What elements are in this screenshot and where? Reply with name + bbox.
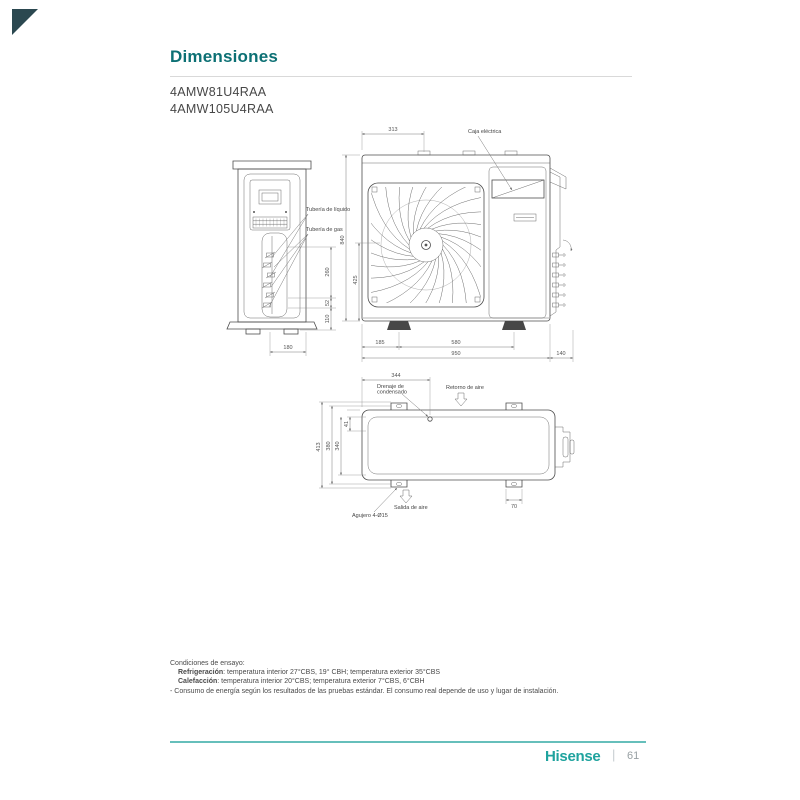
footer-divider (170, 741, 646, 743)
title-divider (170, 76, 632, 77)
catalog-page: { "page": { "title": "Dimensiones", "mod… (0, 0, 800, 800)
cooling-text: : temperatura interior 27°CBS, 19° CBH; … (223, 669, 440, 676)
label-mounting-hole: Agujero 4-Ø15 (352, 513, 388, 519)
pipe-valve-connectors (262, 252, 276, 308)
dim-total-width: 950 (451, 351, 460, 357)
heating-condition: Calefacción: temperatura interior 20°CBS… (170, 677, 558, 686)
conditions-heading: Condiciones de ensayo: (170, 659, 558, 668)
footer-separator: | (612, 747, 615, 762)
front-view: Caja eléctrica 313 840 425 185 580 950 1… (340, 127, 573, 362)
label-electrical-box: Caja eléctrica (468, 129, 502, 135)
air-outlet-arrow-icon (400, 490, 412, 503)
dim-feet-span: 580 (451, 340, 460, 346)
panel-screw (253, 211, 255, 213)
label-air-outlet: Salida de aire (394, 505, 428, 511)
technical-drawing: Tubería de líquido Tubería de gas 260 52… (165, 120, 675, 540)
panel-screw (285, 211, 287, 213)
label-air-return: Retorno de aire (446, 385, 484, 391)
dim-edge-offset: 41 (344, 421, 350, 427)
test-conditions: Condiciones de ensayo: Refrigeración: te… (170, 659, 558, 696)
dim-fan-center: 425 (353, 275, 359, 284)
dim-foot-offset: 185 (375, 340, 384, 346)
dim-top-width: 313 (388, 127, 397, 133)
consumption-note: - Consumo de energía según los resultado… (170, 687, 558, 696)
dim-foot-width: 70 (511, 504, 517, 510)
dim-pipe-52: 52 (325, 300, 331, 306)
corner-accent-triangle (12, 9, 38, 35)
dim-side-depth: 140 (556, 351, 565, 357)
cooling-condition: Refrigeración: temperatura interior 27°C… (170, 668, 558, 677)
page-number: 61 (627, 750, 639, 762)
model-list: 4AMW81U4RAA 4AMW105U4RAA (170, 84, 274, 118)
fan-grille-spiral (344, 163, 507, 327)
label-liquid-pipe: Tubería de líquido (306, 207, 350, 213)
dim-drain-offset: 344 (391, 373, 400, 379)
mounting-foot (502, 321, 526, 330)
dim-body-depth: 340 (335, 441, 341, 450)
dim-pipe-260: 260 (325, 267, 331, 276)
side-view: Tubería de líquido Tubería de gas 260 52… (227, 161, 350, 356)
page-title: Dimensiones (170, 47, 278, 67)
heating-text: : temperatura interior 20°CBS; temperatu… (217, 678, 424, 685)
drain-hole (428, 417, 432, 421)
service-ports (553, 253, 566, 307)
vent-slats (253, 219, 287, 227)
dim-base-width: 180 (283, 345, 292, 351)
dim-height: 840 (340, 235, 346, 244)
label-gas-pipe: Tubería de gas (306, 227, 343, 233)
mounting-foot (387, 321, 411, 330)
model-number: 4AMW81U4RAA (170, 84, 274, 101)
heating-label: Calefacción (178, 678, 217, 685)
dim-overall-depth: 413 (316, 442, 322, 451)
cooling-label: Refrigeración (178, 669, 223, 676)
dim-pipe-110: 110 (325, 315, 331, 324)
dim-feet-depth: 380 (326, 441, 332, 450)
top-view: Drenaje de condensado Retorno de aire Sa… (316, 373, 574, 519)
hisense-logo: Hisense (545, 748, 600, 765)
air-return-arrow-icon (455, 393, 467, 406)
model-number: 4AMW105U4RAA (170, 101, 274, 118)
